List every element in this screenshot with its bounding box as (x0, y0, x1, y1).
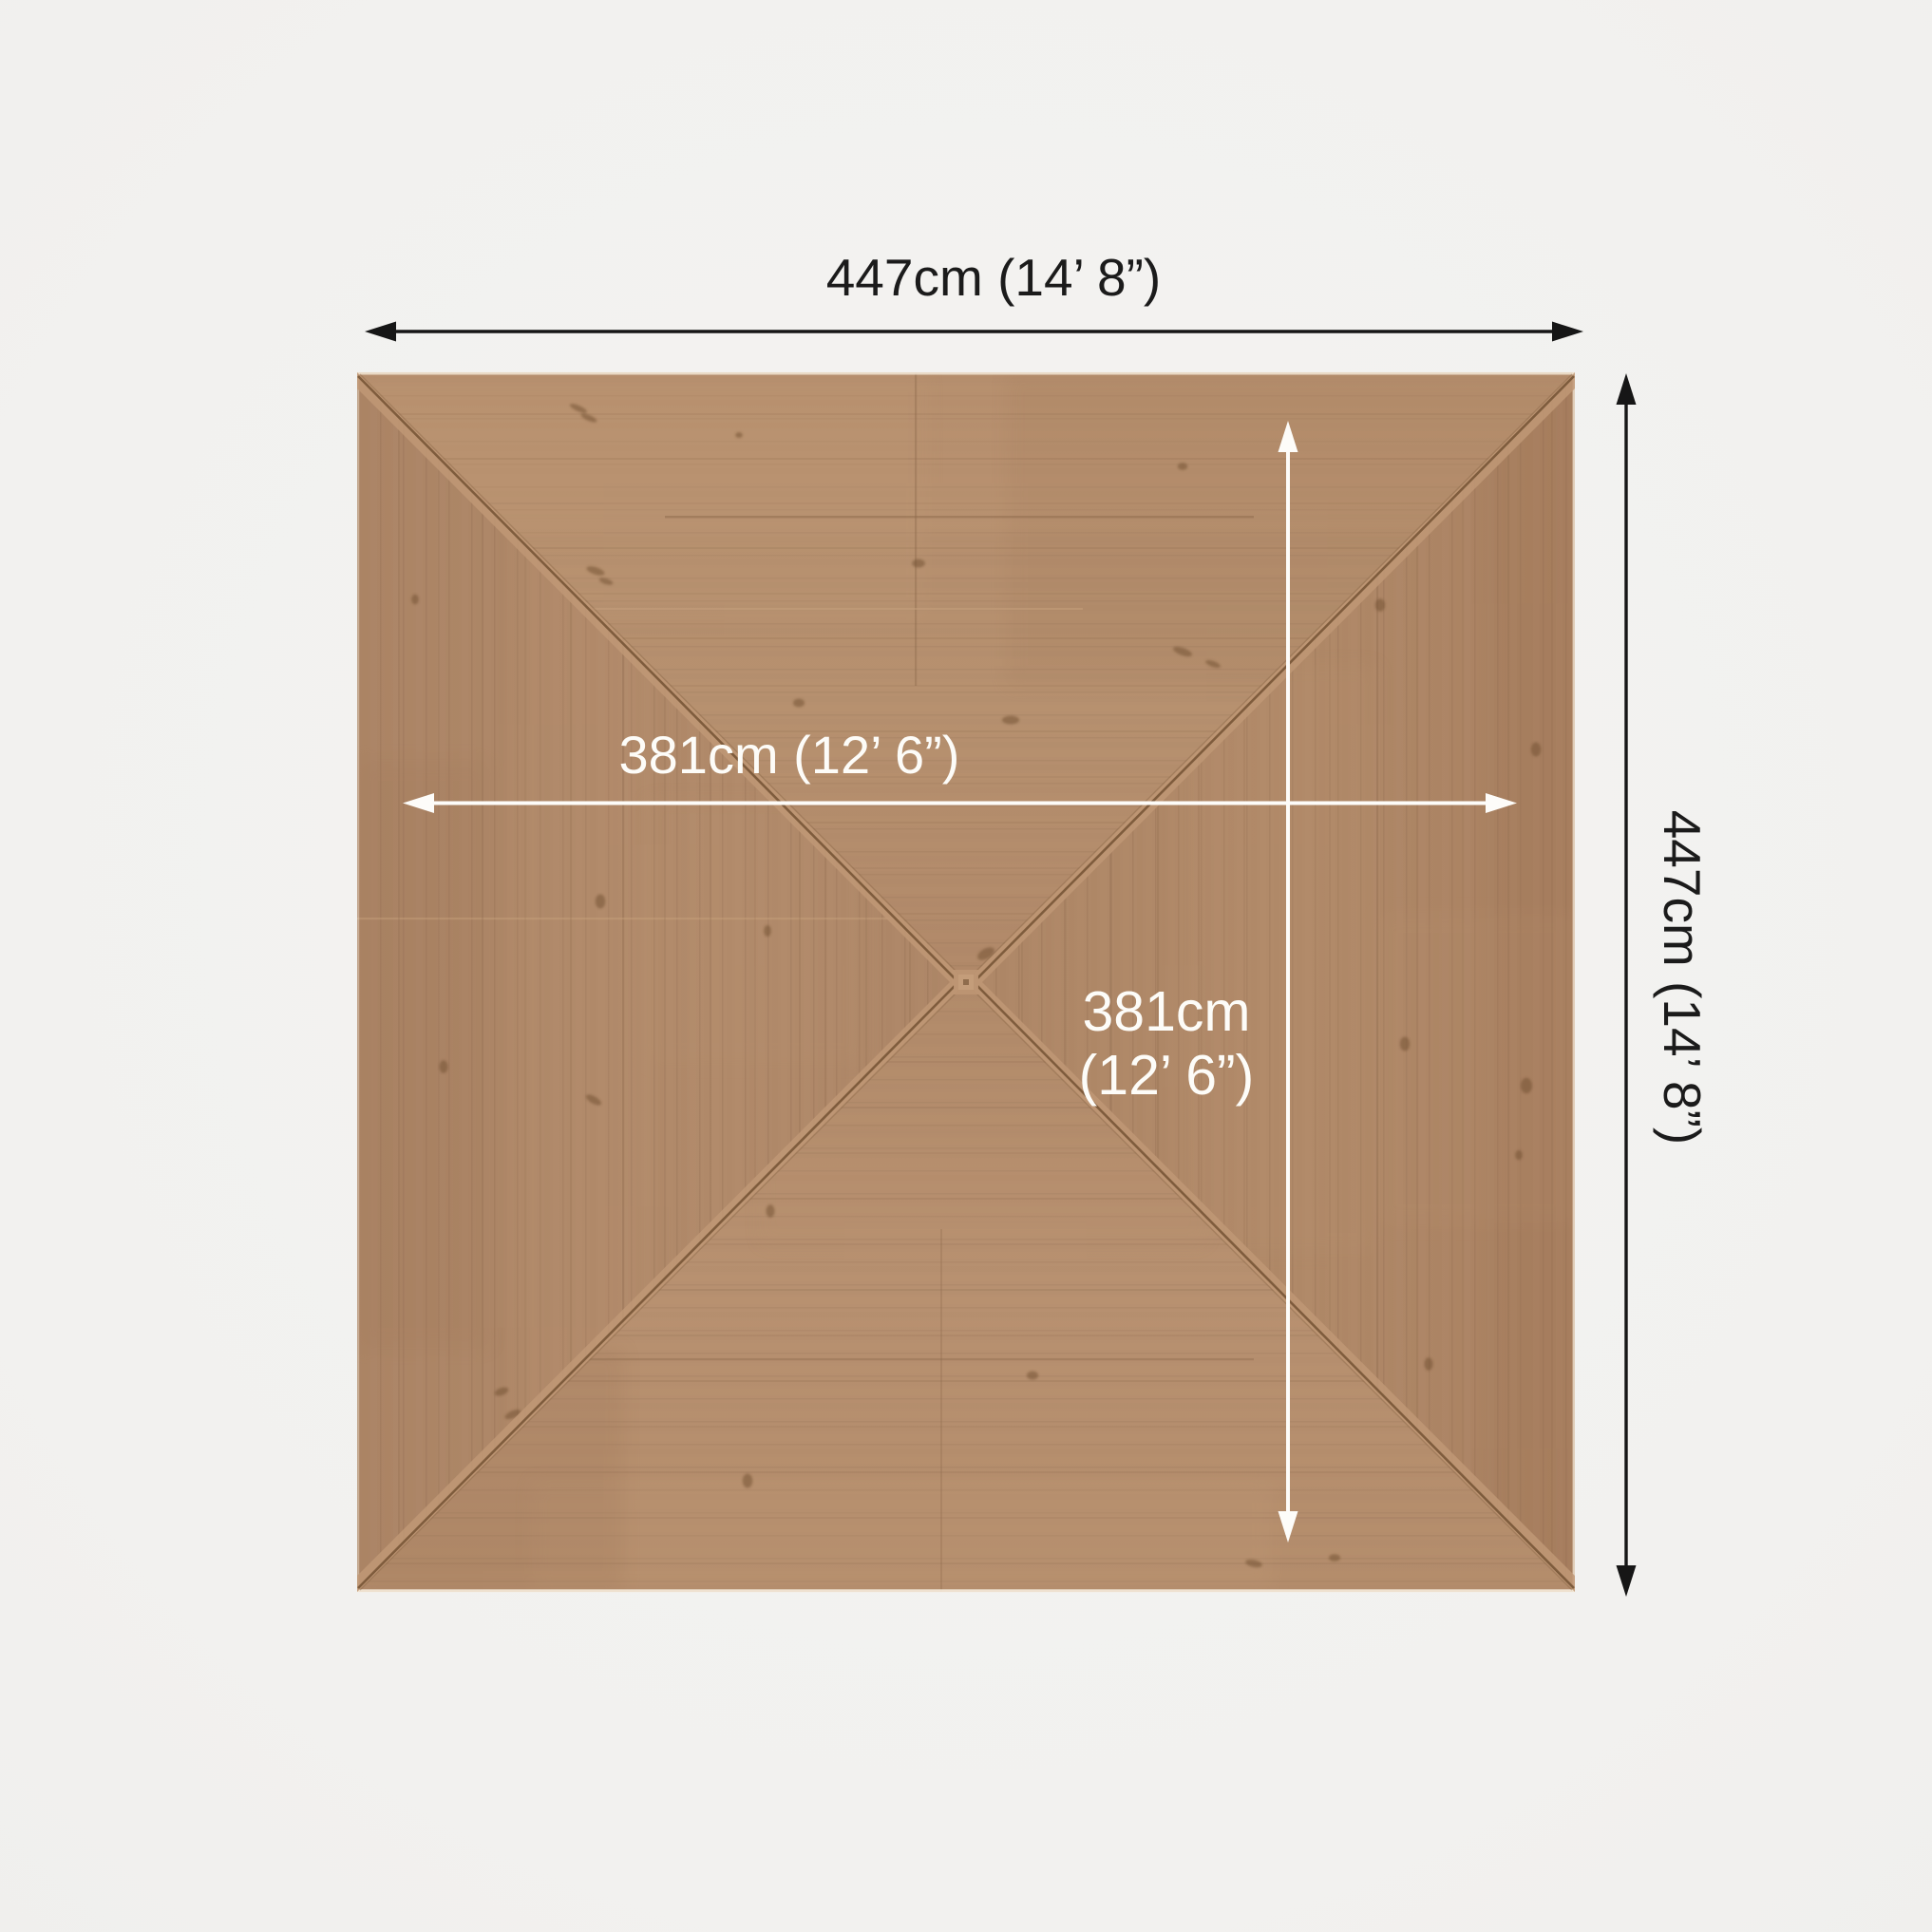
svg-text:447cm (14’ 8”): 447cm (14’ 8”) (826, 248, 1162, 307)
svg-text:(12’ 6”): (12’ 6”) (1079, 1044, 1255, 1107)
svg-text:447cm (14’ 8”): 447cm (14’ 8”) (1653, 810, 1712, 1146)
svg-text:381cm: 381cm (1082, 980, 1250, 1043)
svg-text:381cm (12’ 6”): 381cm (12’ 6”) (619, 725, 960, 785)
